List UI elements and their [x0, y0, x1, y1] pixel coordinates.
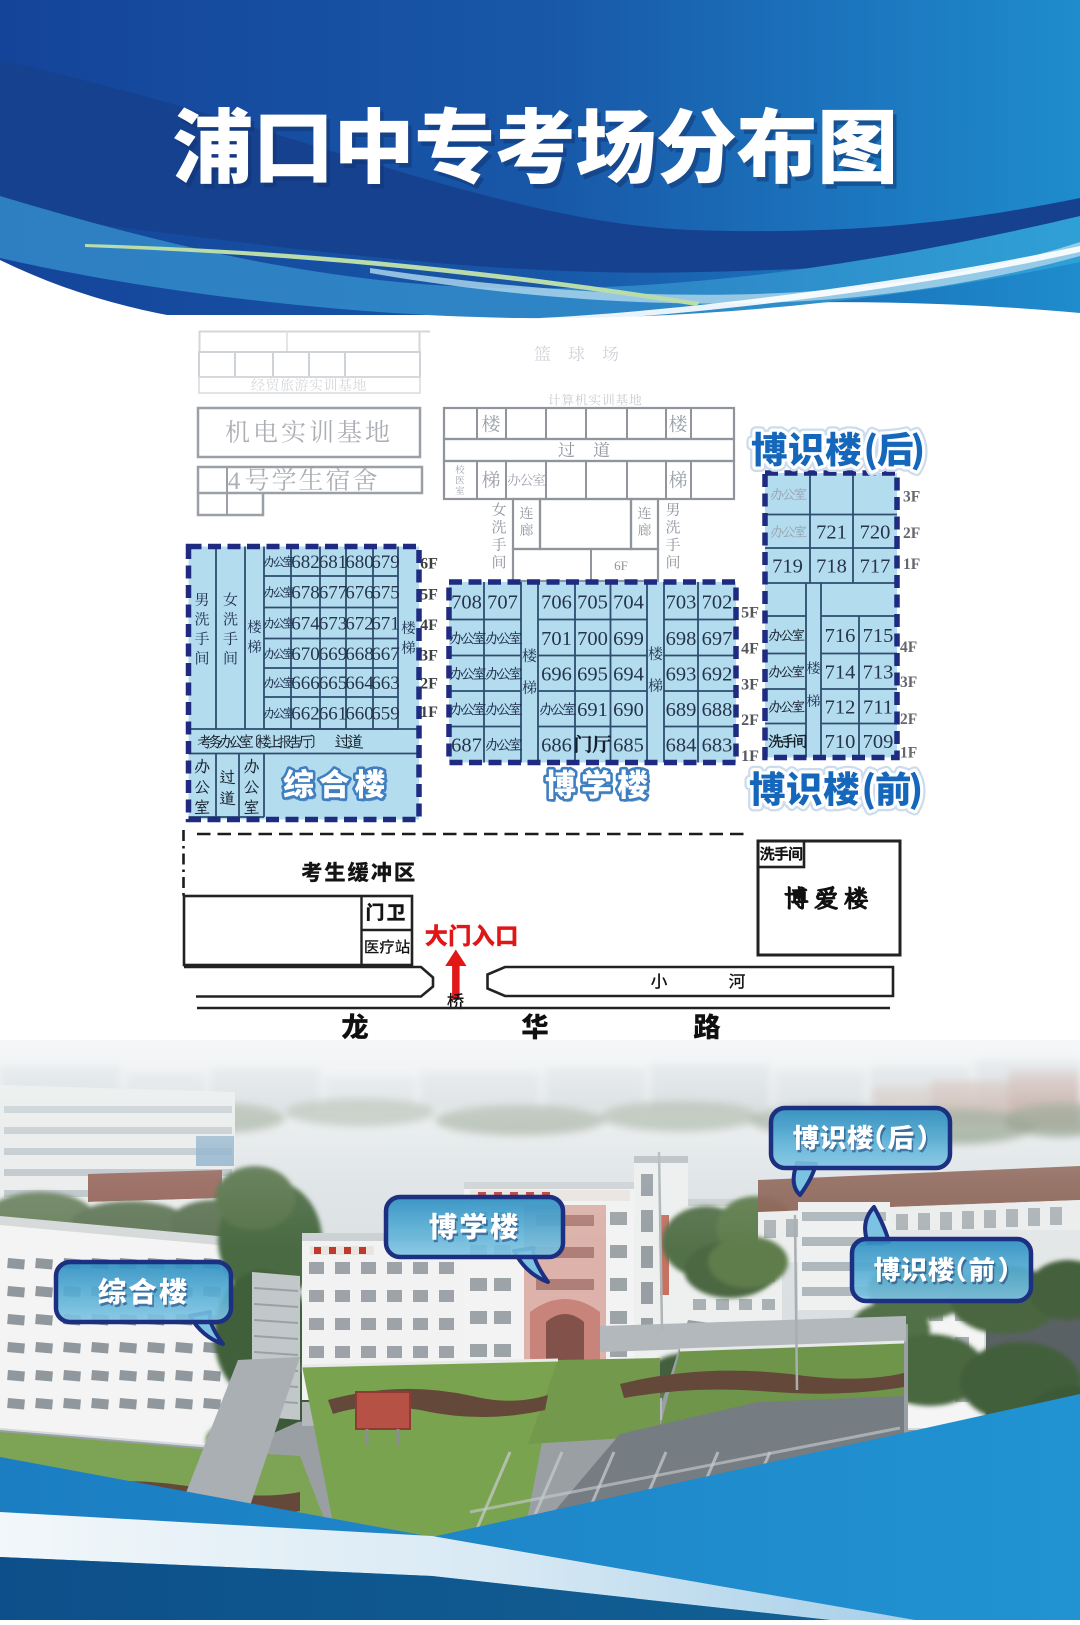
- svg-text:683: 683: [702, 735, 733, 757]
- svg-text:2F: 2F: [903, 525, 920, 542]
- svg-text:660: 660: [345, 704, 374, 725]
- svg-text:666: 666: [291, 673, 320, 694]
- svg-text:6F: 6F: [420, 556, 438, 573]
- svg-text:674: 674: [291, 614, 320, 635]
- svg-text:5F: 5F: [420, 587, 438, 604]
- svg-text:675: 675: [371, 583, 400, 604]
- svg-text:716: 716: [825, 625, 856, 647]
- svg-text:2F: 2F: [741, 712, 759, 729]
- svg-text:699: 699: [613, 628, 644, 650]
- svg-text:663: 663: [371, 673, 400, 694]
- svg-text:661: 661: [319, 704, 348, 725]
- svg-text:688: 688: [702, 699, 733, 721]
- svg-text:696: 696: [541, 664, 572, 686]
- svg-text:3F: 3F: [741, 677, 759, 694]
- svg-text:717: 717: [860, 556, 891, 578]
- svg-text:685: 685: [613, 735, 644, 757]
- svg-text:672: 672: [345, 614, 374, 635]
- svg-text:664: 664: [345, 673, 374, 694]
- svg-text:719: 719: [772, 556, 803, 578]
- svg-text:678: 678: [291, 583, 320, 604]
- svg-text:668: 668: [345, 644, 374, 665]
- svg-text:706: 706: [541, 592, 572, 614]
- svg-text:684: 684: [666, 735, 697, 757]
- svg-text:721: 721: [816, 522, 847, 544]
- svg-text:4: 4: [228, 468, 241, 495]
- svg-text:694: 694: [613, 664, 644, 686]
- svg-text:700: 700: [577, 628, 608, 650]
- svg-text:673: 673: [319, 614, 348, 635]
- svg-text:1F: 1F: [741, 748, 759, 765]
- svg-text:701: 701: [541, 628, 572, 650]
- svg-text:711: 711: [863, 697, 893, 719]
- svg-text:3F: 3F: [420, 648, 438, 665]
- svg-text:5F: 5F: [741, 605, 759, 622]
- svg-text:2F: 2F: [420, 676, 438, 693]
- svg-text:662: 662: [291, 704, 320, 725]
- svg-text:697: 697: [702, 628, 733, 650]
- svg-text:667: 667: [371, 644, 400, 665]
- svg-text:704: 704: [613, 592, 644, 614]
- svg-text:1F: 1F: [420, 704, 438, 721]
- svg-text:670: 670: [291, 644, 320, 665]
- svg-text:677: 677: [319, 583, 348, 604]
- svg-text:715: 715: [863, 625, 894, 647]
- svg-text:679: 679: [371, 552, 400, 573]
- svg-text:3F: 3F: [900, 674, 917, 691]
- svg-text:676: 676: [345, 583, 374, 604]
- svg-text:720: 720: [860, 522, 891, 544]
- svg-text:695: 695: [577, 664, 608, 686]
- svg-text:718: 718: [816, 556, 847, 578]
- svg-text:692: 692: [702, 664, 733, 686]
- svg-text:680: 680: [345, 552, 374, 573]
- svg-text:659: 659: [371, 704, 400, 725]
- svg-text:714: 714: [825, 662, 856, 684]
- svg-text:703: 703: [666, 592, 697, 614]
- svg-text:1F: 1F: [903, 556, 920, 573]
- svg-text:4F: 4F: [420, 617, 438, 634]
- svg-text:713: 713: [863, 662, 894, 684]
- svg-text:705: 705: [577, 592, 608, 614]
- svg-text:1F: 1F: [900, 745, 917, 762]
- svg-text:698: 698: [666, 628, 697, 650]
- svg-text:682: 682: [291, 552, 320, 573]
- svg-text:707: 707: [487, 592, 518, 614]
- svg-text:708: 708: [451, 592, 482, 614]
- svg-text:689: 689: [666, 699, 697, 721]
- svg-text:712: 712: [825, 697, 856, 719]
- svg-text:686: 686: [541, 735, 572, 757]
- svg-text:687: 687: [451, 735, 482, 757]
- svg-text:3F: 3F: [903, 489, 920, 506]
- svg-text:702: 702: [702, 592, 733, 614]
- svg-text:710: 710: [825, 731, 856, 753]
- svg-text:665: 665: [319, 673, 348, 694]
- svg-text:709: 709: [863, 731, 894, 753]
- svg-text:693: 693: [666, 664, 697, 686]
- svg-text:690: 690: [613, 699, 644, 721]
- svg-text:6F: 6F: [614, 558, 628, 573]
- svg-text:681: 681: [319, 552, 348, 573]
- svg-text:2F: 2F: [900, 711, 917, 728]
- svg-text:669: 669: [319, 644, 348, 665]
- svg-text:4F: 4F: [741, 641, 759, 658]
- svg-text:691: 691: [577, 699, 608, 721]
- svg-text:4F: 4F: [900, 639, 917, 656]
- svg-text:671: 671: [371, 614, 400, 635]
